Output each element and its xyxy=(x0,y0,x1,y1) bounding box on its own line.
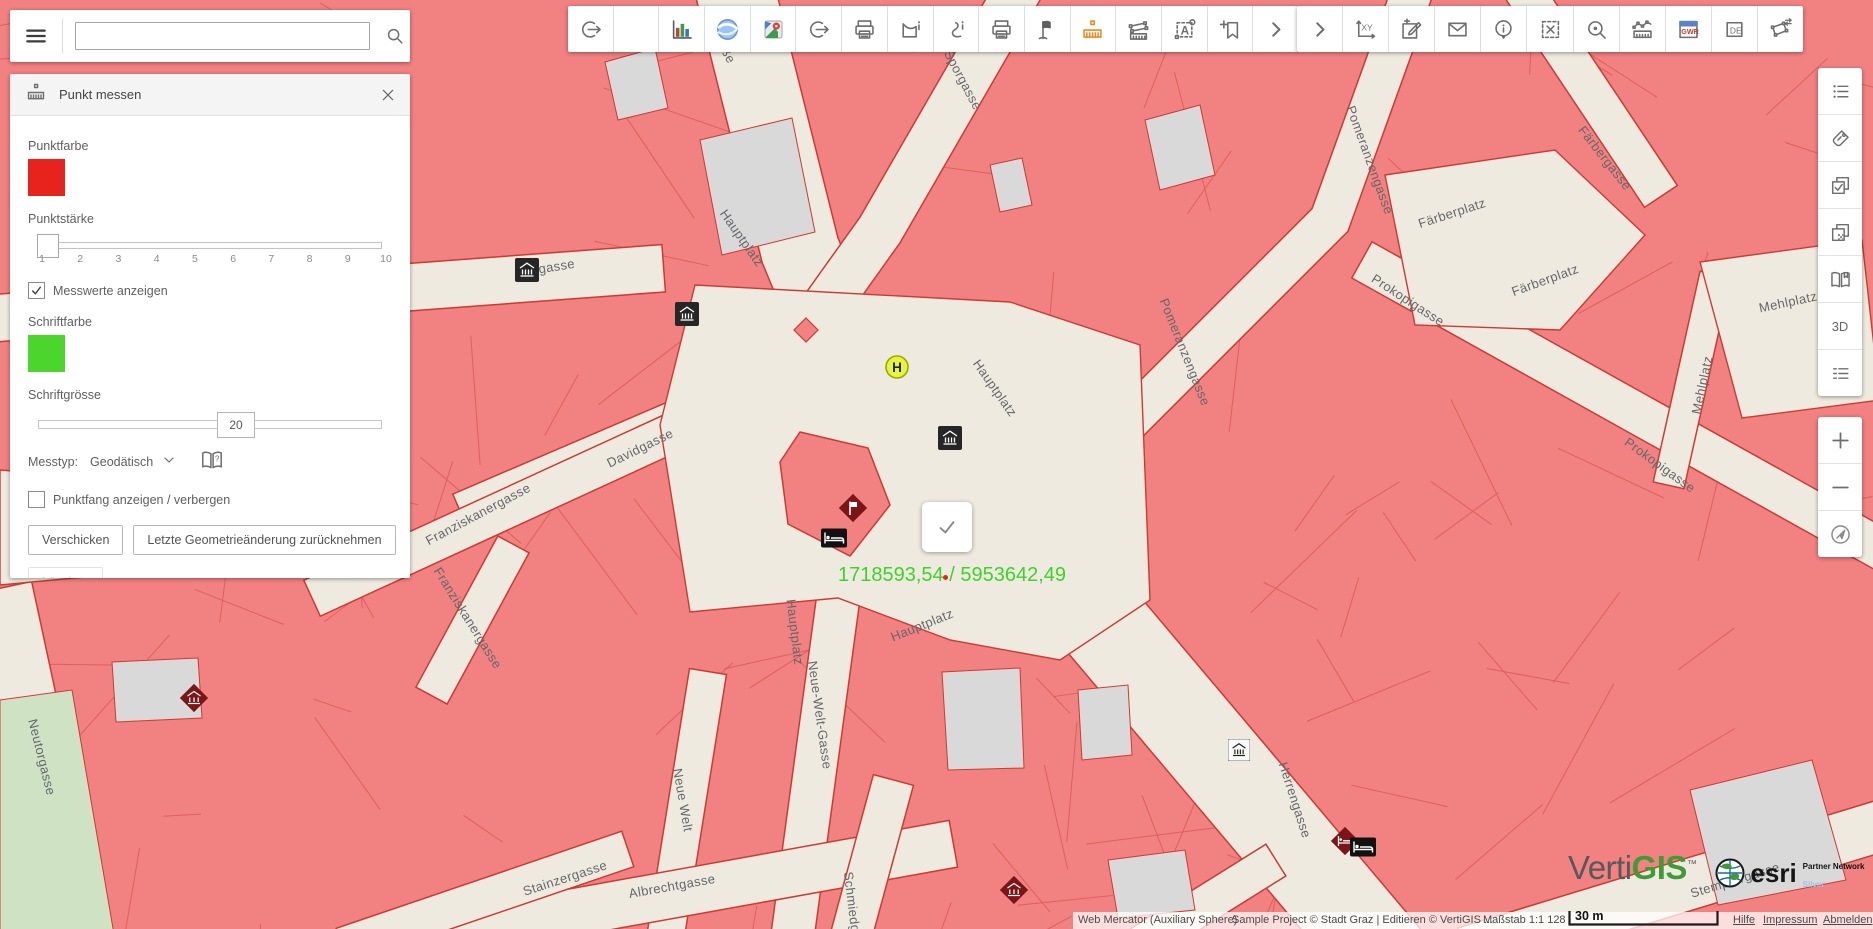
svg-text:A: A xyxy=(1180,23,1189,37)
point-color-label: Punktfarbe xyxy=(28,139,392,153)
edit-redlining-button[interactable] xyxy=(1389,6,1435,52)
view-3d-button[interactable]: 3D xyxy=(1818,302,1862,349)
statusbar: Web Mercator (Auxiliary Sphere) Sample P… xyxy=(1073,912,1873,929)
close-panel-button[interactable] xyxy=(380,87,396,103)
impressum-link[interactable]: Impressum xyxy=(1763,914,1817,926)
layer-list-button[interactable] xyxy=(1818,349,1862,396)
point-color-swatch[interactable] xyxy=(28,159,65,196)
panel-title: Punkt messen xyxy=(59,87,141,102)
search-input[interactable] xyxy=(75,22,370,50)
bookmark-add-button[interactable] xyxy=(1208,6,1254,52)
help-book-button[interactable]: ? xyxy=(185,447,225,476)
projection-label: Web Mercator (Auxiliary Sphere) xyxy=(1078,914,1237,926)
snap-label: Punktfang anzeigen / verbergen xyxy=(53,493,230,507)
close-icon xyxy=(380,87,396,103)
undo-geometry-button[interactable]: Letzte Geometrieänderung zurücknehmen xyxy=(133,525,395,555)
labels-tag-button[interactable] xyxy=(1818,114,1862,161)
search-icon xyxy=(384,25,406,47)
point-size-label: Punktstärke xyxy=(28,212,392,226)
gwr-button[interactable]: GWR xyxy=(1666,6,1712,52)
de-button[interactable]: DE xyxy=(1712,6,1758,52)
scalebar-label: 30 m xyxy=(1575,909,1604,923)
zoom-in-button[interactable] xyxy=(1818,417,1862,463)
svg-text:GWR: GWR xyxy=(1681,27,1699,36)
measured-point-marker xyxy=(943,575,948,580)
branding: VertiGIS™ esri Partner NetworkSilver xyxy=(1568,851,1864,893)
measurement-coordinates: 1718593,54 / 5953642,49 xyxy=(836,564,1068,587)
map-book-button[interactable] xyxy=(1818,255,1862,302)
panel-header: Punkt messen xyxy=(10,74,410,116)
area-info-button[interactable] xyxy=(888,6,934,52)
coordinates-xy-button[interactable]: XY xyxy=(1343,6,1389,52)
blank-slot xyxy=(614,6,660,52)
send-button[interactable]: Verschicken xyxy=(28,525,123,555)
menu-button[interactable] xyxy=(10,10,62,62)
send-mail-button[interactable] xyxy=(1435,6,1481,52)
measure-type-label: Messtyp: xyxy=(28,455,78,469)
measure-point-icon xyxy=(24,80,48,109)
logout-link[interactable]: Abmelden xyxy=(1823,914,1873,926)
topbar xyxy=(10,10,410,62)
measure-line-button[interactable] xyxy=(1116,6,1162,52)
font-size-label: Schriftgrösse xyxy=(28,388,392,402)
point-size-ticks: 12345678910 xyxy=(32,253,388,267)
measure-point-panel: Punkt messen Punktfarbe Punktstärke 1234… xyxy=(10,74,410,578)
collapse-chevron[interactable] xyxy=(1297,6,1343,52)
esri-globe-icon xyxy=(1714,857,1746,889)
zoom-point-button[interactable] xyxy=(1574,6,1620,52)
show-values-label: Messwerte anzeigen xyxy=(53,284,168,298)
esri-wordmark: esri xyxy=(1750,860,1796,886)
secondary-toolbar: XYGWRDE xyxy=(1297,6,1803,52)
google-earth-button[interactable] xyxy=(705,6,751,52)
book-help-icon: ? xyxy=(199,447,225,473)
layer-visibility-button[interactable] xyxy=(1818,161,1862,208)
check-icon xyxy=(30,284,43,297)
flag-marker-button[interactable] xyxy=(1025,6,1071,52)
measure-type-dropdown[interactable] xyxy=(161,452,177,471)
zoom-out-button[interactable] xyxy=(1818,463,1862,510)
session-arrow-2-button[interactable] xyxy=(796,6,842,52)
legend-list-button[interactable] xyxy=(1818,68,1862,114)
search-button[interactable] xyxy=(380,10,410,62)
print-2-button[interactable] xyxy=(979,6,1025,52)
main-toolbar: A xyxy=(568,6,1298,52)
identify-info-button[interactable] xyxy=(1481,6,1527,52)
right-toolbar: 3D xyxy=(1818,68,1862,396)
svg-text:XY: XY xyxy=(1361,22,1373,32)
esri-logo: esri Partner NetworkSilver xyxy=(1714,853,1864,893)
measure-profile-button[interactable] xyxy=(1620,6,1666,52)
scale-label: Maßstab 1:1 128 xyxy=(1483,914,1566,926)
point-size-slider[interactable] xyxy=(38,242,382,249)
locate-button[interactable] xyxy=(1818,510,1862,557)
session-arrow-button[interactable] xyxy=(568,6,614,52)
show-values-checkbox[interactable] xyxy=(28,282,45,299)
partner-network-label: Partner Network xyxy=(1803,862,1865,871)
annotate-text-button[interactable]: A xyxy=(1162,6,1208,52)
statistics-chart-button[interactable] xyxy=(659,6,705,52)
layer-transparency-button[interactable] xyxy=(1818,208,1862,255)
vertigis-logo: VertiGIS™ xyxy=(1568,851,1696,884)
checkmark-icon xyxy=(934,514,960,540)
zoom-control xyxy=(1818,417,1862,557)
delete-button[interactable]: Löschen xyxy=(28,567,103,578)
svg-text:DE: DE xyxy=(1730,25,1742,35)
google-maps-button[interactable] xyxy=(751,6,797,52)
font-color-label: Schriftfarbe xyxy=(28,315,392,329)
confirm-measurement-button[interactable] xyxy=(922,502,972,552)
measure-type-select[interactable]: Geodätisch xyxy=(90,455,153,469)
more-tools-chevron[interactable] xyxy=(1253,6,1298,52)
print-button[interactable] xyxy=(842,6,888,52)
chevron-down-icon xyxy=(161,452,177,468)
svg-text:?: ? xyxy=(215,455,220,464)
attribution-label: Sample Project © Stadt Graz | Editieren … xyxy=(1232,914,1493,926)
snap-checkbox[interactable] xyxy=(28,491,45,508)
topbar-divider xyxy=(62,19,63,53)
scalebar: 30 m xyxy=(1568,907,1720,928)
app-stage: straßeSporgasseMurgasseHauptplatzHauptpl… xyxy=(0,0,1873,929)
line-info-button[interactable] xyxy=(934,6,980,52)
font-size-slider[interactable]: 20 xyxy=(38,420,382,429)
hamburger-icon xyxy=(23,23,49,49)
help-link[interactable]: Hilfe xyxy=(1733,914,1755,926)
font-size-value[interactable]: 20 xyxy=(217,412,255,438)
partner-tier-label: Silver xyxy=(1803,880,1825,889)
clear-selection-button[interactable] xyxy=(1527,6,1573,52)
measure-point-button[interactable] xyxy=(1071,6,1117,52)
edit-geometry-button[interactable] xyxy=(1758,6,1803,52)
font-color-swatch[interactable] xyxy=(28,335,65,372)
